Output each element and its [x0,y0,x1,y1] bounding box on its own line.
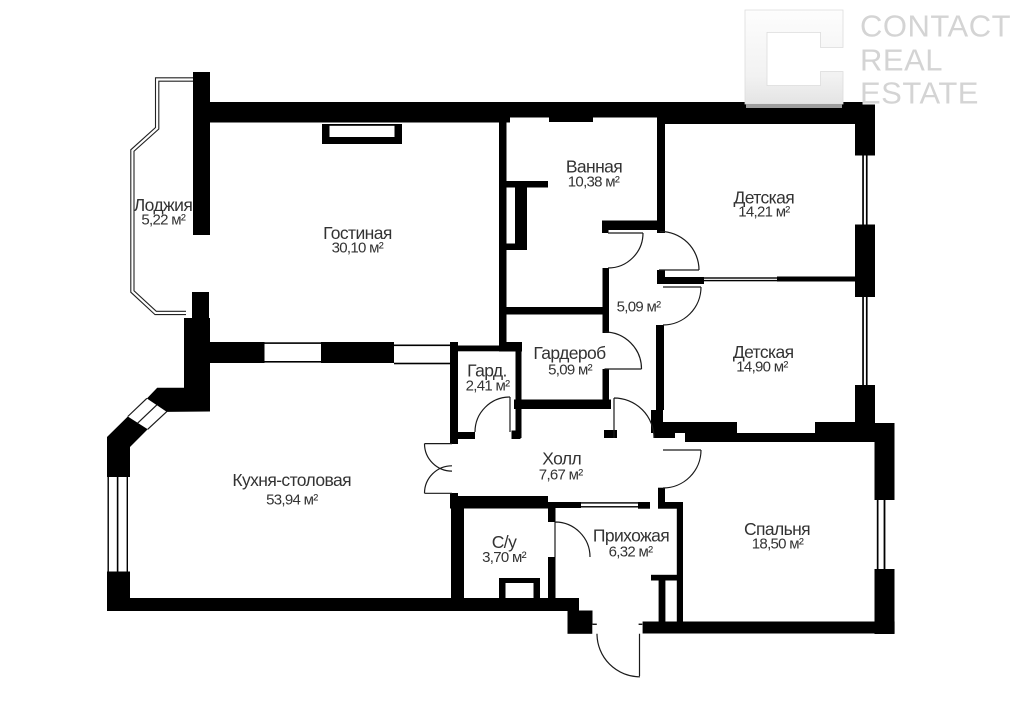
svg-text:Прихожая: Прихожая [593,526,669,546]
svg-text:3,70 м²: 3,70 м² [482,549,526,566]
svg-text:5,09 м²: 5,09 м² [548,362,592,379]
svg-text:5,09 м²: 5,09 м² [617,299,661,316]
svg-text:5,22 м²: 5,22 м² [141,212,185,229]
svg-text:Кухня-столовая: Кухня-столовая [232,470,351,490]
svg-text:Гардероб: Гардероб [533,343,606,363]
svg-text:ESTATE: ESTATE [860,76,979,111]
svg-text:18,50 м²: 18,50 м² [752,536,804,553]
svg-text:2,41 м²: 2,41 м² [466,378,510,395]
svg-text:CONTACT: CONTACT [860,9,1011,44]
svg-text:REAL: REAL [860,43,943,78]
svg-text:14,90 м²: 14,90 м² [736,359,788,376]
svg-text:14,21 м²: 14,21 м² [738,204,790,221]
svg-text:30,10 м²: 30,10 м² [332,240,384,257]
svg-text:Холл: Холл [542,449,581,469]
svg-text:53,94 м²: 53,94 м² [266,492,318,509]
svg-text:6,32 м²: 6,32 м² [609,544,653,561]
svg-text:7,67 м²: 7,67 м² [539,467,583,484]
svg-text:10,38 м²: 10,38 м² [568,174,620,191]
